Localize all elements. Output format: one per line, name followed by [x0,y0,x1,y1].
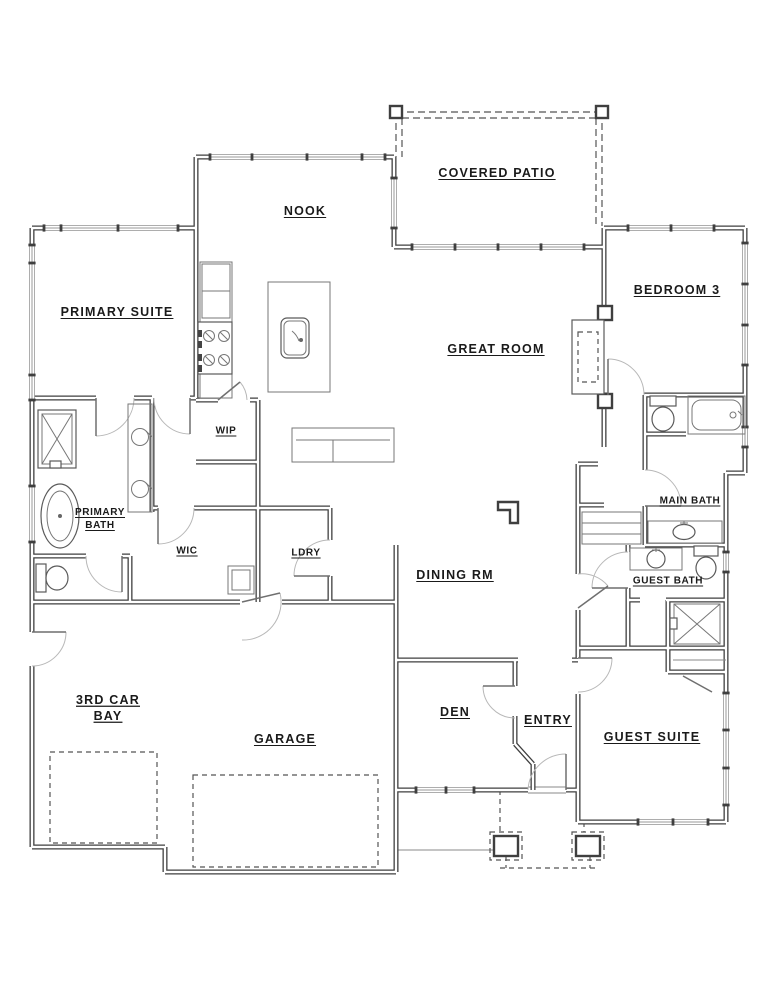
window-jamb [722,729,729,732]
kitchen-island [268,282,330,392]
door-swing-arc [608,359,644,395]
window [28,485,35,544]
shower-icon [38,410,76,468]
garage-door-dashed [50,752,378,867]
door [483,686,515,718]
bathtub-icon [41,484,79,548]
window-jamb [28,262,35,265]
window [722,551,729,574]
window-jamb [637,818,640,825]
window-jamb [627,224,630,231]
door [242,593,281,640]
window-jamb [43,224,46,231]
window-jamb [28,541,35,544]
closet-door [683,676,712,692]
room-label-nook: NOOK [284,204,326,218]
guest-closet [673,660,726,692]
window-jamb [28,374,35,377]
window-jamb [741,364,748,367]
window [390,177,397,230]
door-swing-arc [578,658,612,692]
room-label-bedroom-3: BEDROOM 3 [634,283,721,297]
main-bath-fixtures [648,396,745,543]
window-jamb [209,153,212,160]
window-jamb [390,227,397,230]
window-jamb [722,804,729,807]
linen-closet [582,512,641,544]
window-jamb [390,177,397,180]
room-label-dining-rm: DINING RM [416,568,493,582]
porch-column-icon [576,836,600,856]
window-jamb [670,224,673,231]
window-jamb [497,243,500,250]
room-label-wic: WIC [176,546,197,557]
shower-icon [670,604,720,644]
window-jamb [445,786,448,793]
door-swing-arc [32,632,66,666]
door [86,556,122,592]
window-jamb [583,243,586,250]
room-label-covered-patio: COVERED PATIO [438,166,555,180]
room-label-great-room: GREAT ROOM [447,342,544,356]
window-jamb [28,399,35,402]
door-swing-arc [86,556,122,592]
kitchen-fixtures [198,262,330,398]
sink-icon [630,548,682,570]
window-jamb [384,153,387,160]
window [741,242,748,367]
window-jamb [722,767,729,770]
room-label-entry: ENTRY [524,713,572,727]
room-label-primary-suite: PRIMARY SUITE [61,305,174,319]
window [209,153,387,160]
room-label-primary-bath-line2: BATH [85,519,114,532]
door [154,398,190,434]
window-jamb [117,224,120,231]
stove-icon [198,322,232,374]
room-label-den: DEN [440,705,470,719]
room-label-guest-bath: GUEST BATH [633,576,703,587]
room-label-ldry: LDRY [291,548,320,559]
window-jamb [713,224,716,231]
walls [32,157,745,872]
console-cabinet-icon [292,428,394,462]
window-jamb [60,224,63,231]
window-jamb [741,242,748,245]
porch-column-icon [494,836,518,856]
door-leaf [218,382,240,400]
room-label-garage: GARAGE [254,732,316,746]
window-jamb [722,571,729,574]
toilet-icon [650,396,676,431]
fireplace-icon [572,320,604,394]
room-label-primary-bath: PRIMARY BATH [75,506,125,532]
window [722,692,729,807]
room-label-3rd-car-bay: 3RD CAR BAY [76,692,140,725]
window-jamb [473,786,476,793]
window-jamb [540,243,543,250]
bathtub-icon [688,396,745,434]
wic-cabinet-icon [228,566,254,594]
room-label-primary-bath-line1: PRIMARY [75,506,125,519]
window-jamb [454,243,457,250]
window-jamb [306,153,309,160]
door-swing-arc [154,398,190,434]
windows [28,153,748,825]
room-label-3rd-car-bay-line1: 3RD CAR [76,692,140,708]
window-jamb [722,692,729,695]
window-jamb [415,786,418,793]
window-jamb [741,446,748,449]
fridge-icon [202,264,230,318]
sink-icon [648,521,722,543]
window [28,244,35,402]
door [158,508,194,544]
window [637,818,710,825]
window [411,243,586,250]
door-swing-arc [158,508,194,544]
door-leaf [578,586,608,608]
door [578,658,612,692]
window-jamb [672,818,675,825]
floor-plan: COVERED PATIO NOOK PRIMARY SUITE BEDROOM… [0,0,773,1000]
door [592,552,628,588]
room-label-3rd-car-bay-line2: BAY [94,708,123,724]
window-jamb [28,485,35,488]
door-swing-arc [592,552,628,588]
window-jamb [707,818,710,825]
window-jamb [722,551,729,554]
window-jamb [361,153,364,160]
island-sink-icon [281,318,309,358]
window-jamb [177,224,180,231]
door-swing-arc [483,686,515,718]
window-jamb [741,283,748,286]
entry-porch [396,787,604,868]
structural-column [498,502,518,523]
patio-post-icon [596,106,608,118]
room-label-main-bath: MAIN BATH [660,496,721,507]
floor-plan-drawing [0,0,773,1000]
toilet-icon [36,564,68,592]
door [32,632,66,666]
room-label-wip: WIP [216,426,237,437]
window-jamb [411,243,414,250]
window-jamb [741,324,748,327]
window [627,224,716,231]
door-swing-arc [240,382,247,400]
vanity-double-sink-icon [128,404,152,512]
toilet-icon [694,546,718,579]
patio-post-icon [390,106,402,118]
window-jamb [251,153,254,160]
window [415,786,476,793]
window [43,224,180,231]
window-jamb [28,244,35,247]
room-label-guest-suite: GUEST SUITE [604,730,701,744]
door [608,359,644,395]
